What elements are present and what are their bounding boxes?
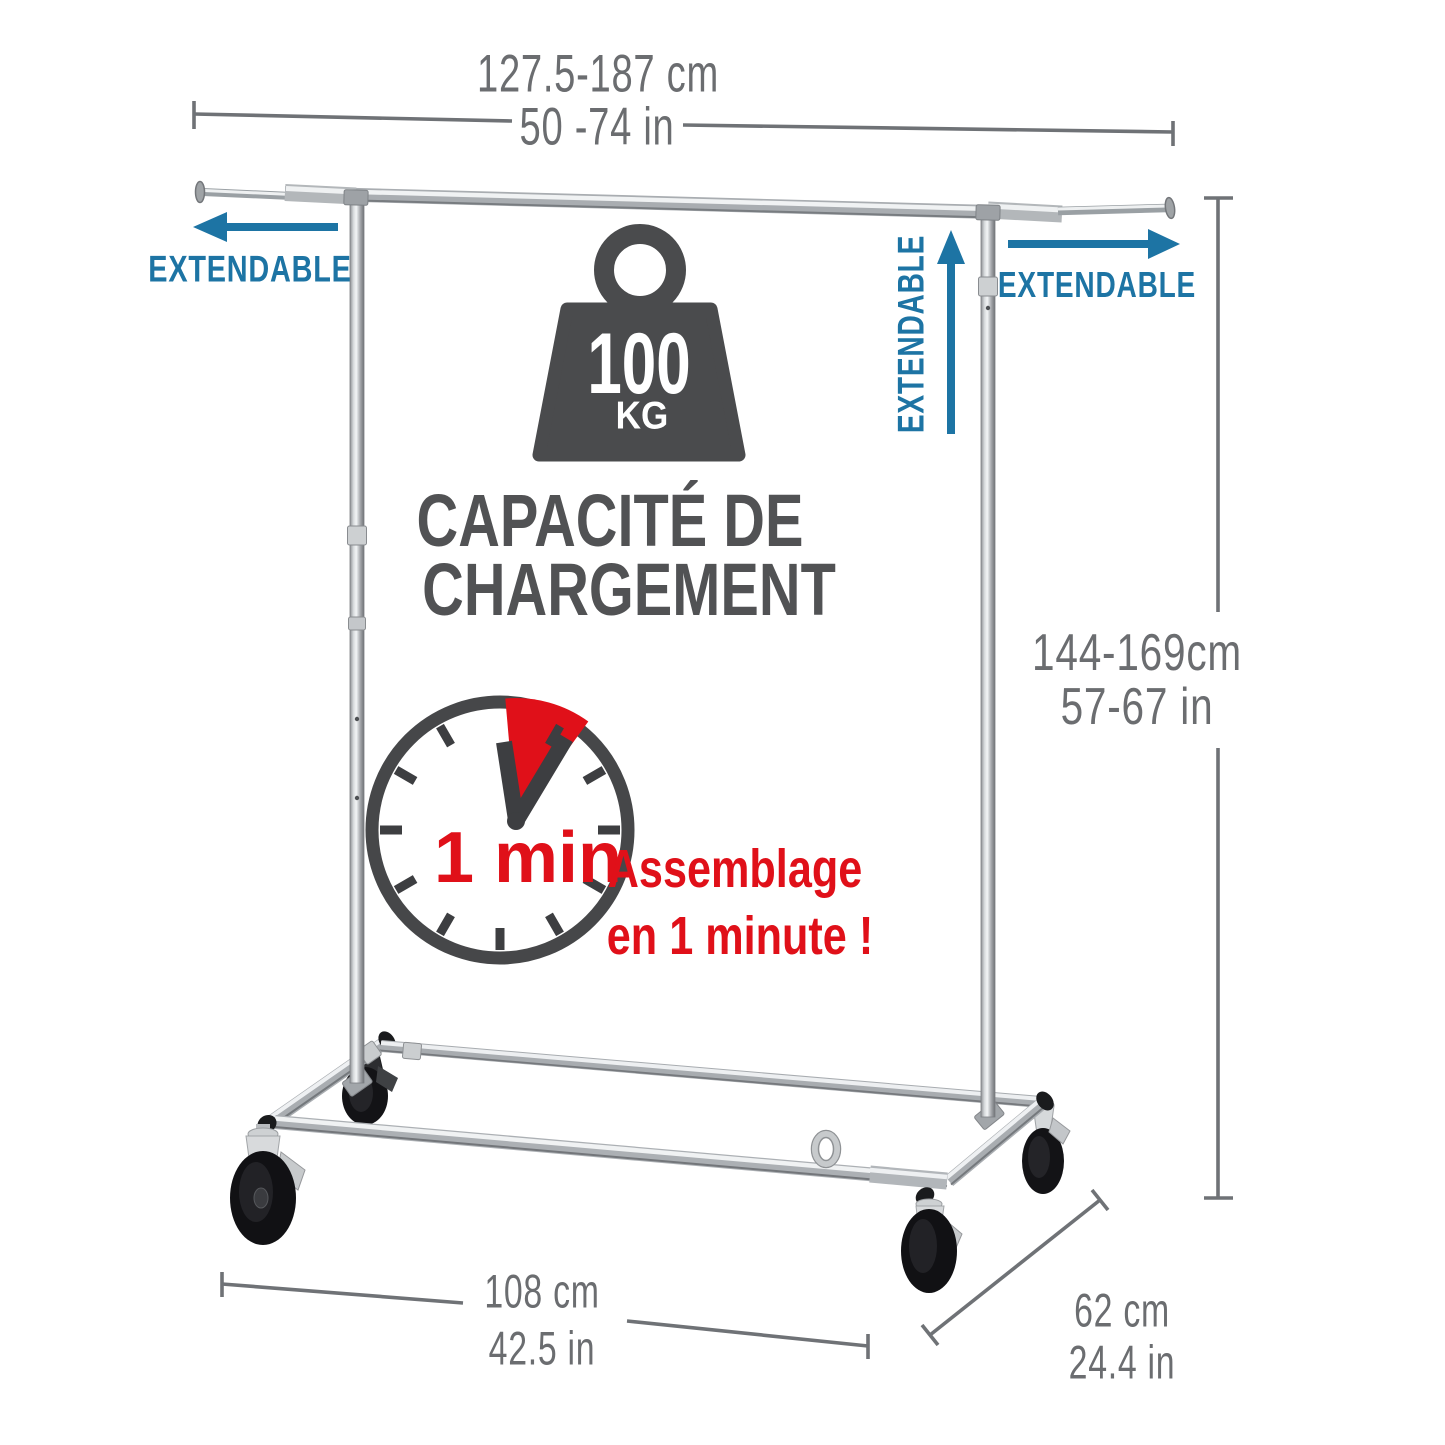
- right-upright-post: [979, 212, 998, 1117]
- caster-wheel-front-left: [230, 1124, 305, 1245]
- top-width-cm-label: 127.5-187 cm: [477, 48, 719, 101]
- top-hanging-bar: [203, 189, 1167, 221]
- extendable-right-label: EXTENDABLE: [998, 267, 1196, 303]
- assembly-caption-line2: en 1 minute !: [607, 909, 873, 963]
- base-front-rail: [275, 1119, 947, 1187]
- tube-end-cap: [196, 182, 205, 203]
- extendable-middle-label: EXTENDABLE: [893, 235, 930, 433]
- right-height-cm-label: 144-169cm: [1032, 627, 1242, 679]
- top-width-dimension-line: [194, 101, 1173, 146]
- extendable-left-label: EXTENDABLE: [148, 251, 351, 288]
- clock-minute-label: 1 min: [434, 822, 622, 894]
- assembly-caption-line1: Assemblage: [608, 842, 863, 896]
- side-depth-in-label: 24.4 in: [1069, 1339, 1176, 1386]
- product-infographic: 127.5-187 cm 50 -74 in EXTENDABLE EXTEND…: [0, 0, 1445, 1445]
- weight-unit-label: KG: [616, 397, 669, 436]
- left-arrow-icon: [193, 212, 338, 242]
- base-back-rail: [381, 1042, 1041, 1106]
- caster-wheel-front-right: [901, 1184, 962, 1293]
- up-arrow-icon: [937, 230, 965, 434]
- bottom-length-cm-label: 108 cm: [484, 1268, 599, 1315]
- top-width-in-label: 50 -74 in: [520, 101, 675, 154]
- side-depth-cm-label: 62 cm: [1074, 1287, 1170, 1334]
- right-height-in-label: 57-67 in: [1061, 681, 1214, 733]
- infographic-artwork: [0, 0, 1445, 1445]
- tube-end-cap: [1164, 197, 1176, 219]
- right-arrow-icon: [1008, 229, 1180, 259]
- capacity-caption-line2: CHARGEMENT: [422, 553, 836, 627]
- capacity-caption-line1: CAPACITÉ DE: [417, 484, 804, 558]
- bottom-length-in-label: 42.5 in: [489, 1325, 596, 1372]
- ring-clamp: [812, 1131, 841, 1168]
- left-upright-post: [348, 197, 367, 1083]
